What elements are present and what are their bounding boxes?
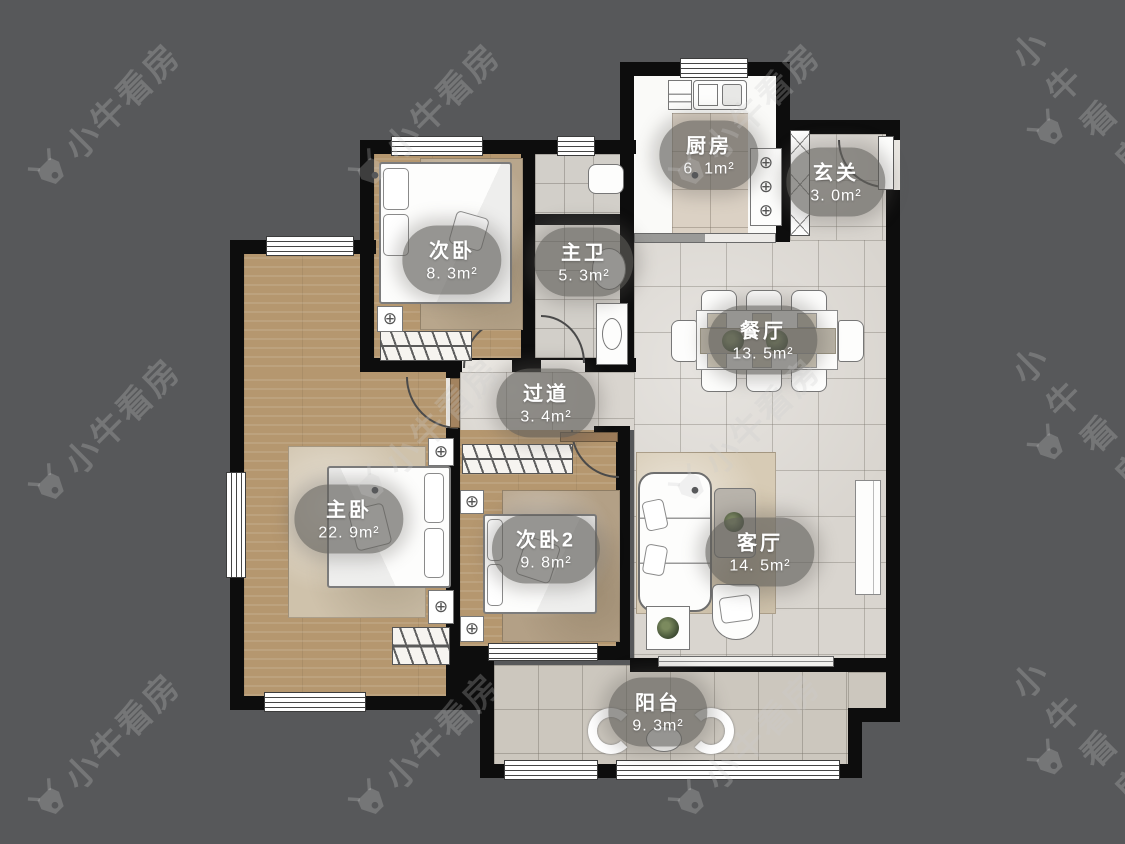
bedroom3-nightstand: [460, 616, 484, 642]
dining-chair: [671, 320, 697, 362]
dining-chair: [838, 320, 864, 362]
room-name: 玄关: [810, 157, 861, 186]
window: [616, 760, 840, 780]
balcony-floor: [848, 672, 886, 708]
room-name: 主卫: [558, 237, 609, 266]
room-label-master-bath: 主卫 5. 3m²: [534, 228, 633, 297]
master-bedroom-floor: [244, 254, 360, 376]
master-door-leaf: [450, 378, 460, 428]
kitchen-sink-basin: [722, 84, 742, 106]
room-area: 6. 1m²: [683, 161, 734, 179]
bedroom3-wardrobe: [462, 444, 573, 474]
armchair-pillow: [718, 594, 753, 624]
wall: [360, 140, 374, 372]
bedroom2-wardrobe: [380, 331, 472, 361]
wall: [886, 120, 900, 672]
room-name: 厨房: [683, 130, 734, 159]
pillow: [383, 168, 409, 210]
room-label-bedroom3: 次卧2 9. 8m²: [492, 515, 600, 584]
pillow: [424, 528, 444, 578]
master-nightstand: [428, 590, 454, 624]
washbasin-bowl: [602, 318, 622, 350]
room-area: 3. 4m²: [520, 409, 571, 427]
room-label-balcony: 阳台 9. 3m²: [608, 678, 707, 747]
room-name: 餐厅: [732, 315, 793, 344]
window: [680, 58, 748, 78]
kitchen-cabinet: [668, 80, 692, 110]
room-area: 13. 5m²: [732, 346, 793, 364]
side-table-plant: [657, 617, 679, 639]
bath-partition: [535, 214, 620, 225]
kitchen-sliding-door: [634, 233, 776, 243]
room-area: 9. 8m²: [516, 555, 576, 573]
toilet: [588, 164, 624, 194]
room-label-entry: 玄关 3. 0m²: [786, 148, 885, 217]
room-area: 3. 0m²: [810, 188, 861, 206]
room-label-living: 客厅 14. 5m²: [705, 518, 814, 587]
room-label-hallway: 过道 3. 4m²: [496, 369, 595, 438]
master-nightstand: [428, 438, 454, 466]
room-label-bedroom2: 次卧 8. 3m²: [402, 226, 501, 295]
floor-plan: 厨房 6. 1m² 玄关 3. 0m² 次卧 8. 3m² 主卫 5. 3m² …: [0, 0, 1125, 844]
burner: [757, 154, 775, 172]
room-area: 14. 5m²: [729, 558, 790, 576]
room-name: 过道: [520, 378, 571, 407]
balcony-sliding-door: [658, 656, 834, 667]
room-area: 22. 9m²: [318, 525, 379, 543]
window: [391, 136, 483, 156]
room-name: 次卧2: [516, 524, 576, 553]
room-area: 8. 3m²: [426, 266, 477, 284]
window: [264, 692, 366, 712]
room-label-kitchen: 厨房 6. 1m²: [659, 121, 758, 190]
tv-console: [855, 480, 881, 595]
room-name: 主卧: [318, 494, 379, 523]
room-label-master-bedroom: 主卧 22. 9m²: [294, 485, 403, 554]
master-wardrobe: [392, 627, 450, 665]
bedroom2-nightstand: [377, 306, 403, 332]
window: [504, 760, 598, 780]
window: [557, 136, 595, 156]
window: [226, 472, 246, 578]
wall: [460, 660, 480, 710]
burner: [757, 202, 775, 220]
room-name: 次卧: [426, 235, 477, 264]
window: [266, 236, 354, 256]
room-label-dining: 餐厅 13. 5m²: [708, 306, 817, 375]
window: [488, 643, 598, 661]
burner: [757, 178, 775, 196]
room-name: 阳台: [632, 687, 683, 716]
pillow: [424, 473, 444, 523]
bedroom3-nightstand: [460, 490, 484, 514]
room-area: 9. 3m²: [632, 718, 683, 736]
wall: [480, 660, 494, 778]
sofa: [638, 472, 712, 612]
wall: [521, 140, 535, 372]
screenshot: 厨房 6. 1m² 玄关 3. 0m² 次卧 8. 3m² 主卫 5. 3m² …: [0, 0, 1125, 844]
kitchen-sink-basin: [698, 84, 718, 106]
room-area: 5. 3m²: [558, 268, 609, 286]
room-name: 客厅: [729, 527, 790, 556]
